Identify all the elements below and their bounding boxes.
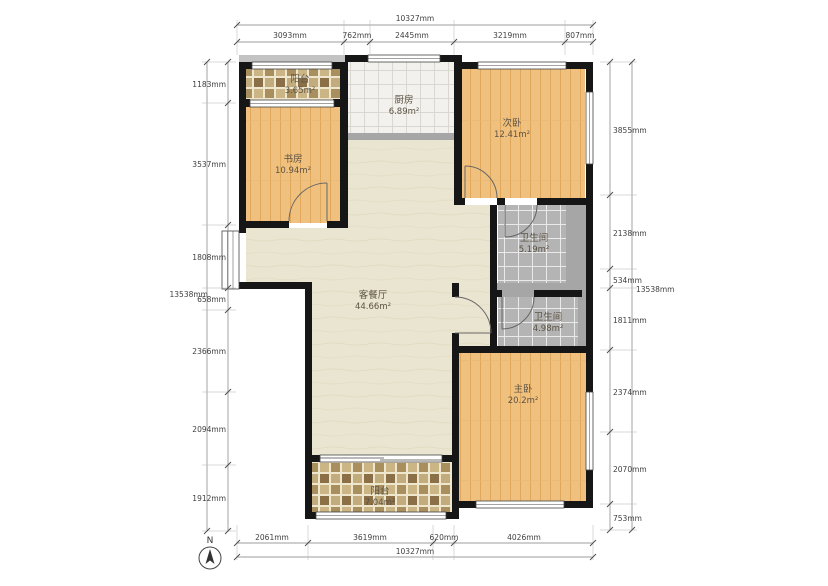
wall-segment (239, 282, 312, 289)
living-dining-name: 客餐厅 (359, 289, 388, 301)
dim-right-4: 2374mm (613, 388, 647, 397)
master-bedroom-name: 主卧 (513, 383, 533, 395)
wall-segment (442, 455, 459, 462)
bedroom-2-area: 12.41m² (494, 130, 530, 140)
wall-segment (305, 282, 312, 519)
window-frame (320, 455, 442, 462)
wall-segment (327, 221, 348, 228)
compass-north-label: N (207, 536, 214, 546)
wall-segment (490, 205, 497, 290)
window-balcony-bottom (316, 512, 446, 519)
kitchen-area: 6.89m² (389, 107, 420, 117)
window-study-balcony (250, 100, 334, 107)
dim-right-0: 3855mm (613, 126, 647, 135)
wall-segment (239, 221, 289, 228)
dim-left-2: 1808mm (192, 253, 226, 262)
dim-right-total: 13538mm (636, 285, 674, 294)
floor-plan-page: 阳台 3.65m² 书房 10.94m² 厨房 6.89m² 次卧 12.41m… (0, 0, 828, 586)
dim-right-6: 753mm (613, 514, 642, 523)
balcony-top-area: 3.65m² (285, 86, 316, 96)
dim-bottom-2: 620mm (430, 533, 459, 542)
wall-segment (452, 346, 593, 353)
study-area: 10.94m² (275, 166, 311, 176)
wall-segment (537, 198, 593, 205)
master-bedroom-area: 20.2m² (508, 396, 539, 406)
dim-right-3: 1811mm (613, 316, 647, 325)
bath-2-name: 卫生间 (534, 311, 563, 323)
dim-left-4: 2366mm (192, 347, 226, 356)
wall-segment (340, 62, 348, 228)
bath-1-name: 卫生间 (520, 232, 549, 244)
dim-left-1: 3537mm (192, 160, 226, 169)
dim-right-2: 534mm (613, 276, 642, 285)
bath-1-area: 5.19m² (519, 245, 550, 255)
wall-segment (454, 55, 462, 205)
dim-right-1: 2138mm (613, 229, 647, 238)
window-kitchen-top (368, 55, 440, 62)
dim-bottom-1: 3619mm (353, 533, 387, 542)
wall-segment (239, 62, 246, 233)
dim-top-3: 3219mm (493, 31, 527, 40)
bath-2-area: 4.98m² (533, 324, 564, 334)
window-right-master (586, 392, 593, 470)
wall-segment (490, 297, 497, 347)
dim-bottom-3: 4026mm (507, 533, 541, 542)
sliding-door-living-balcony (320, 455, 442, 462)
dim-top-2: 2445mm (395, 31, 429, 40)
balcony-bottom-name: 阳台 (370, 485, 389, 497)
wall-segment (452, 283, 459, 297)
floor-plan-canvas: 阳台 3.65m² 书房 10.94m² 厨房 6.89m² 次卧 12.41m… (0, 0, 828, 586)
wall-segment (239, 99, 250, 107)
dim-top-0: 3093mm (273, 31, 307, 40)
wall-segment (534, 290, 582, 297)
wall-segment (490, 290, 502, 297)
compass: N (199, 536, 221, 569)
wall-segment (452, 462, 459, 519)
master-bedroom-floor (458, 353, 588, 503)
dim-top-1: 762mm (343, 31, 372, 40)
kitchen-living-divider-wall (348, 133, 454, 140)
window-balcony-top (252, 62, 332, 69)
dim-bottom-total: 10327mm (396, 547, 434, 556)
window-master-bottom (476, 501, 564, 508)
dim-left-0: 1183mm (192, 80, 226, 89)
dim-left-5: 2094mm (192, 425, 226, 434)
dim-top-total: 10327mm (396, 14, 434, 23)
wall-segment (305, 455, 320, 462)
wall-segment (455, 198, 465, 205)
dim-top-4: 807mm (566, 31, 595, 40)
study-name: 书房 (283, 153, 302, 165)
dim-left-6: 1912mm (192, 494, 226, 503)
window-bedroom-2-top (478, 62, 566, 69)
balcony-top-outer-trim (239, 55, 345, 62)
kitchen-name: 厨房 (394, 94, 413, 106)
dim-right-5: 2070mm (613, 465, 647, 474)
window-right-bedroom-2 (586, 92, 593, 164)
wall-segment (497, 198, 505, 205)
bedroom-2-name: 次卧 (502, 117, 522, 129)
bath-1-floor (498, 205, 566, 283)
dim-left-total: 13538mm (170, 290, 208, 299)
dim-bottom-0: 2061mm (255, 533, 289, 542)
balcony-bottom-area: 7.04m² (365, 498, 396, 508)
balcony-top-name: 阳台 (290, 73, 309, 85)
living-dining-area: 44.66m² (355, 302, 391, 312)
